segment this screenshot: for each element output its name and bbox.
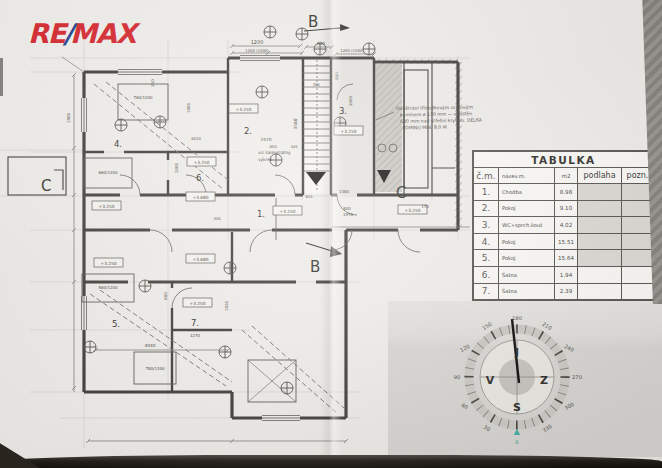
elevation-box: +3.250 (92, 201, 121, 210)
elevation-box: +3.680 (186, 254, 215, 263)
room-number: 1. (474, 184, 499, 201)
degree-label: 90 (454, 374, 461, 380)
dim-label: 800 (334, 72, 339, 80)
section-arrow-icon (340, 24, 350, 31)
dim-label: 850 (269, 144, 277, 149)
room-area: 4.02 (555, 217, 578, 234)
level-circle (219, 346, 231, 358)
room-name: WC+sprch.kout (499, 217, 555, 234)
chimney-note: Odvětrání třísložkovým ocelovým komínem … (396, 104, 483, 130)
window-label: 760/1200 (133, 95, 153, 100)
room-label: 3. (339, 106, 347, 116)
dim-label: 630 (317, 41, 325, 46)
level-circle (256, 86, 268, 98)
window-label: 660/1200 (98, 170, 118, 175)
remax-logo: RE/MAX (28, 20, 136, 47)
dim-label: 3580 (293, 118, 298, 129)
svg-text:+3.250: +3.250 (236, 107, 252, 112)
level-circle (115, 119, 127, 131)
dim-label: 330 (213, 216, 221, 221)
room-number: 5. (474, 250, 499, 267)
podlaha-cell (578, 184, 622, 201)
level-circle (224, 262, 236, 274)
pozn-cell (622, 266, 654, 283)
level-circle (154, 116, 166, 128)
cardinal-j: J (514, 346, 519, 359)
elevation-box: +3.250 (229, 104, 258, 113)
room-number: 3. (474, 217, 499, 234)
scanned-floorplan-photo: B B C C 1. 2. 3. 4. 5. 6. 7. (0, 0, 662, 468)
section-marker-b-top: B (304, 13, 350, 31)
room-name: Pokoj (499, 250, 555, 267)
svg-text:600 mm nad střešní krytinu. DÉ: 600 mm nad střešní krytinu. DÉLKA (400, 116, 483, 123)
photo-bottom-edge (0, 455, 662, 468)
room-number: 2. (474, 200, 499, 217)
room-name: Šatna (499, 283, 555, 300)
svg-text:+3.250: +3.250 (101, 261, 117, 266)
window-label: 560/1200 (98, 285, 118, 290)
room-number: 7. (474, 283, 499, 300)
dim-label: 1200 (251, 39, 264, 45)
elevation-box: +3.250 (183, 298, 212, 307)
cardinal-z: Z (540, 374, 548, 387)
roof-corner-line (62, 57, 84, 72)
dim-label: 600 (163, 292, 168, 300)
table-row: 3. WC+sprch.kout 4.02 (474, 217, 654, 234)
dim-label: 250 (150, 79, 155, 87)
table-row: 1. Chodba 8.98 (474, 184, 654, 201)
logo-max: MAX (70, 18, 136, 49)
room-name: Šatna (499, 266, 555, 283)
level-circle (139, 280, 151, 292)
degree-label: 270 (572, 374, 582, 380)
dim-label: 700 (312, 82, 320, 87)
svg-text:+3.250: +3.250 (190, 301, 206, 306)
dim-label: 615 (305, 194, 313, 199)
room-area: 15.51 (555, 233, 578, 250)
pozn-cell (622, 283, 654, 300)
table-row: 2. Pokoj 9.10 (474, 200, 654, 217)
elevation-box: +3.250 (187, 157, 216, 166)
dim-label: 1970 (343, 212, 354, 217)
cardinal-v: V (486, 374, 495, 387)
paper-edge-mark (0, 58, 3, 96)
dim-label: 1380 (339, 189, 350, 194)
room-name: Chodba (499, 184, 555, 201)
dim-label: 1200 (1000) (245, 48, 269, 53)
room-area: 15.64 (555, 250, 578, 267)
svg-text:C: C (41, 177, 51, 195)
pozn-cell (622, 250, 654, 267)
elevation-box: +3.250 (334, 126, 363, 135)
level-circle (363, 43, 375, 55)
col-header-nazev: název.m. (499, 168, 555, 184)
room-area: 1.94 (555, 266, 578, 283)
cardinal-s: S (513, 401, 521, 414)
col-header-m2: m2 (555, 168, 578, 184)
svg-text:výkres: výkres (258, 157, 273, 162)
svg-text:+3.680: +3.680 (193, 195, 209, 200)
svg-text:KOMÍNU MIN. 8,0 M: KOMÍNU MIN. 8,0 M (402, 124, 446, 131)
zero-degree-label: 0 (515, 439, 518, 445)
room-name: Pokoj (499, 200, 555, 217)
level-circle (264, 26, 276, 38)
room-label: 2. (244, 126, 252, 136)
dim-label: 800 (343, 206, 351, 211)
svg-text:+3.250: +3.250 (99, 204, 115, 209)
podlaha-cell (578, 283, 622, 300)
room-area: 8.98 (555, 184, 578, 201)
room-name: Pokoj (499, 233, 555, 250)
pozn-cell (622, 217, 654, 234)
room-area: 2.39 (555, 283, 578, 300)
svg-text:+3.680: +3.680 (193, 257, 209, 262)
compass-rose: J Z S V 180 210 240 270 300 330 30 60 90… (442, 302, 592, 452)
degree-label: 30 (483, 424, 492, 433)
pozn-cell (622, 233, 654, 250)
window-size-labels: 760/1200 660/1200 560/1200 780/1200 (98, 95, 165, 371)
podlaha-cell (578, 233, 622, 250)
logo-re: RE (28, 18, 65, 49)
dim-label: 1920 (224, 300, 229, 311)
dim-label: 2000 (348, 96, 353, 106)
pozn-cell (622, 184, 654, 201)
pozn-cell (622, 200, 654, 217)
level-circle (281, 382, 293, 394)
window-label: 780/1200 (145, 366, 165, 371)
dim-label: 1900 (186, 102, 191, 113)
dim-label: 1270 (190, 333, 201, 338)
section-marker-c-left: C (41, 170, 63, 195)
elevation-box: +3.250 (273, 206, 302, 215)
podlaha-cell (578, 266, 622, 283)
room-area: 9.10 (555, 200, 578, 217)
room-label: 1. (257, 209, 265, 219)
roof-windows (82, 84, 296, 402)
degree-label: 180 (512, 315, 522, 321)
room-label: 4. (114, 139, 122, 149)
dim-label: 1200 (1000) (340, 48, 364, 53)
room-label: 5. (112, 319, 120, 329)
svg-text:+3.250: +3.250 (341, 129, 357, 134)
degree-label: 150 (481, 321, 493, 331)
podlaha-cell (578, 250, 622, 267)
level-circle (296, 28, 308, 40)
dim-label: 2470 (261, 137, 272, 142)
svg-text:B: B (308, 13, 318, 31)
col-header-podlaha: podlaha (578, 168, 622, 184)
svg-text:B: B (310, 258, 320, 276)
dim-label: 6250 (191, 136, 201, 141)
degree-label: 240 (563, 343, 575, 353)
svg-text:viz samostatný: viz samostatný (258, 150, 291, 155)
svg-text:C: C (396, 184, 406, 202)
elevation-box: +3.250 (94, 258, 123, 267)
podlaha-cell (578, 200, 622, 217)
col-header-cm: č.m. (474, 168, 499, 184)
degree-label: 300 (563, 401, 575, 411)
table-row: 7. Šatna 2.39 (474, 283, 654, 300)
room-table: TABULKA č.m. název.m. m2 podlaha pozn. 1… (473, 151, 654, 300)
room-number: 4. (474, 233, 499, 250)
north-zero-marker-icon (514, 429, 520, 435)
table-row: 5. Pokoj 15.64 (474, 250, 654, 267)
room-number: 6. (474, 266, 499, 283)
room-label: 7. (191, 318, 199, 328)
table-row: 4. Pokoj 15.51 (474, 233, 654, 250)
dim-label: 170 (421, 204, 429, 209)
degree-label: 330 (541, 423, 553, 433)
degree-label: 60 (460, 402, 469, 410)
dim-label: 4040 (145, 343, 156, 348)
level-circle (84, 341, 96, 353)
svg-text:+3.250: +3.250 (280, 209, 296, 214)
dim-label: 1900 (66, 112, 71, 123)
svg-text:+3.250: +3.250 (405, 208, 421, 213)
dim-label: 445 (290, 144, 298, 149)
table-title: TABULKA (474, 152, 654, 168)
table-row: 6. Šatna 1.94 (474, 266, 654, 283)
degree-label: 210 (541, 321, 553, 331)
svg-text:+3.250: +3.250 (194, 160, 210, 165)
podlaha-cell (578, 217, 622, 234)
section-arrow-icon (330, 246, 342, 257)
dim-label: 2000 (174, 162, 179, 173)
degree-label: 120 (459, 343, 471, 353)
elevation-box: +3.680 (186, 192, 215, 201)
room-label: 6. (196, 173, 204, 183)
